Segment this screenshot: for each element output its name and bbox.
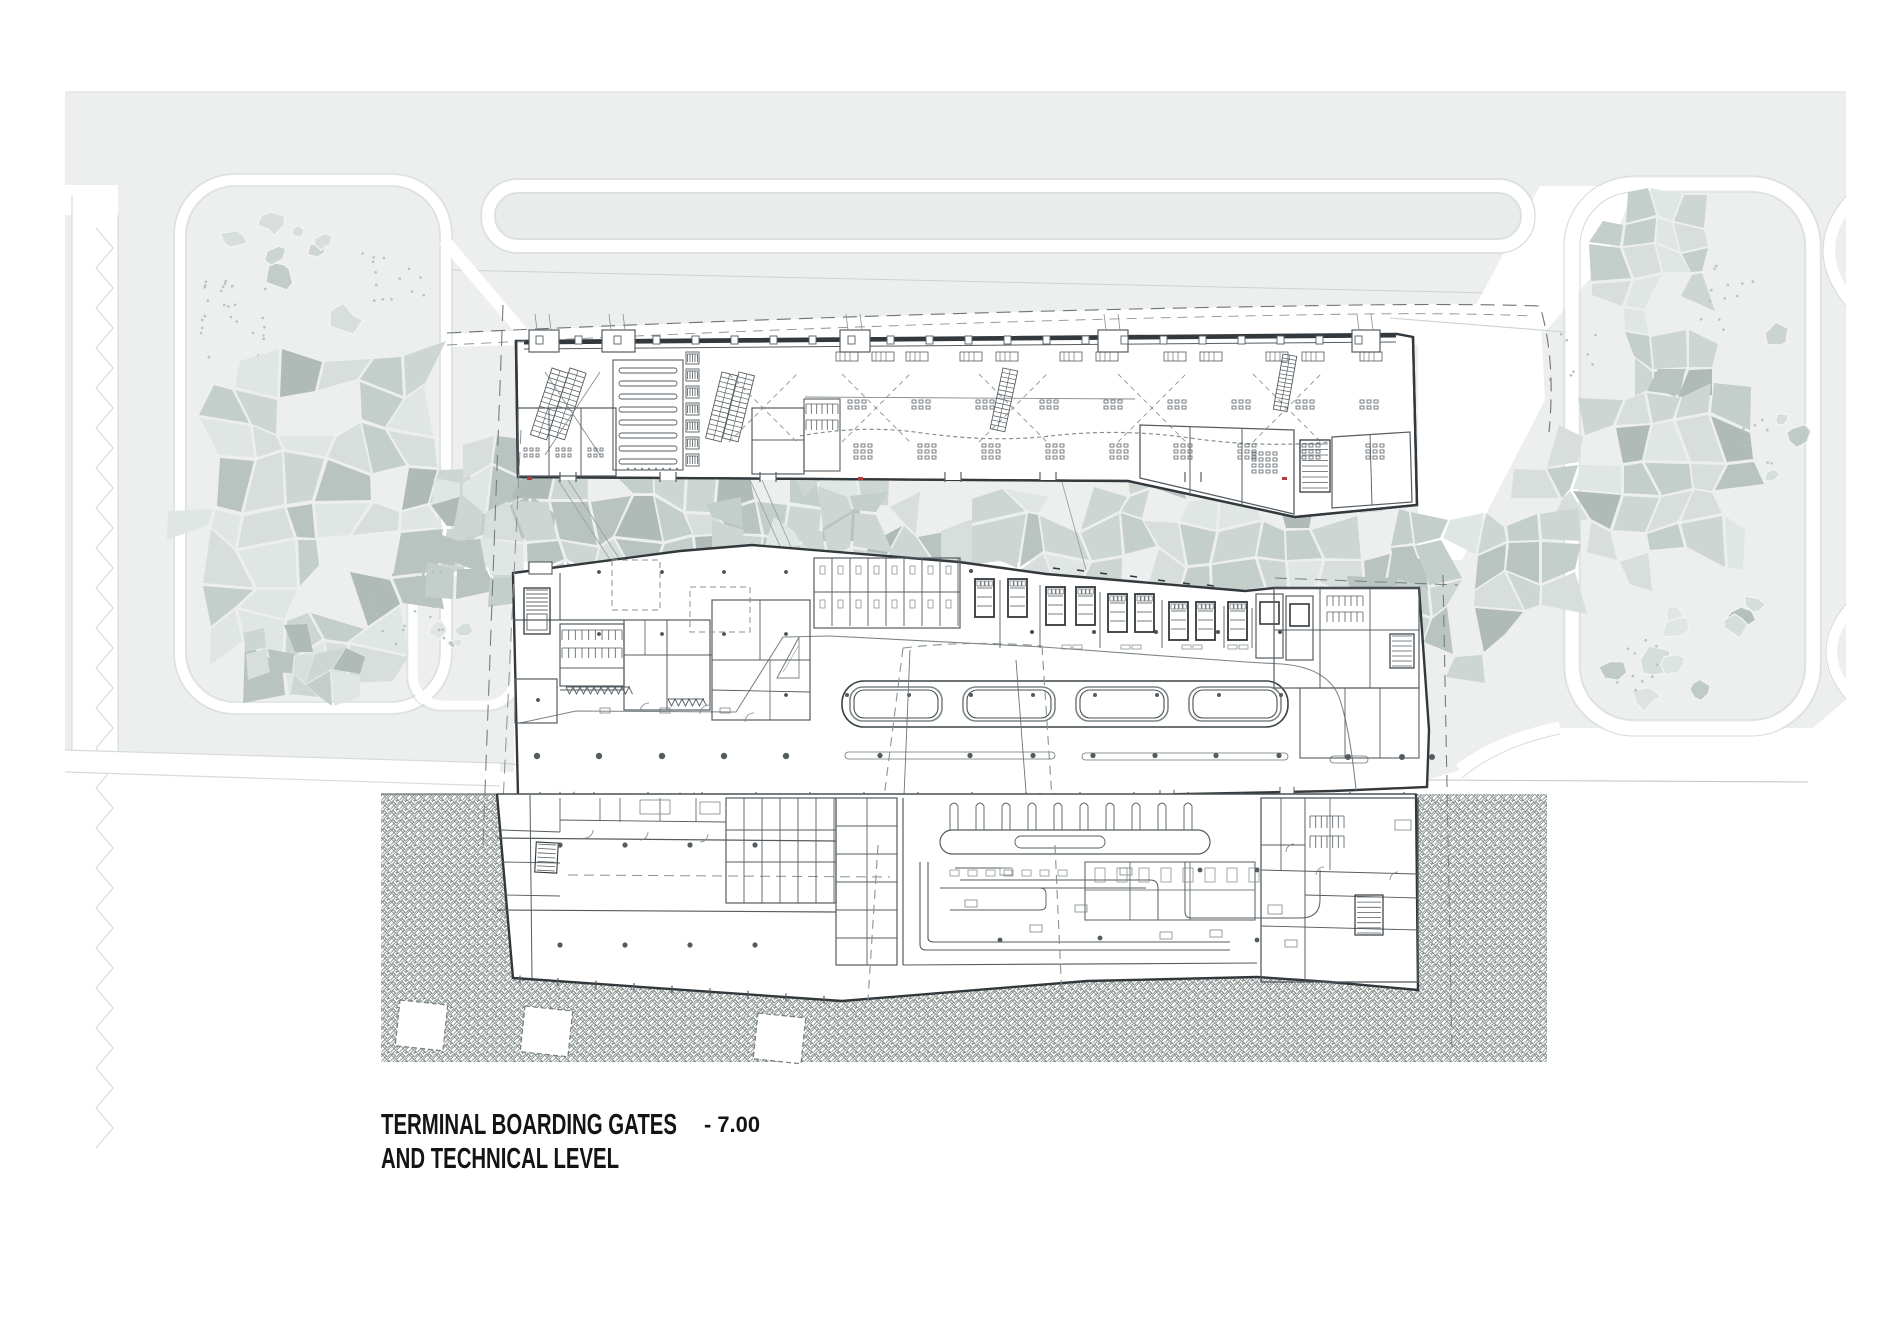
svg-text:AND TECHNICAL LEVEL: AND TECHNICAL LEVEL — [381, 1143, 619, 1175]
svg-text:TERMINAL BOARDING GATES: TERMINAL BOARDING GATES — [381, 1109, 677, 1141]
svg-text:- 7.00: - 7.00 — [704, 1112, 760, 1137]
